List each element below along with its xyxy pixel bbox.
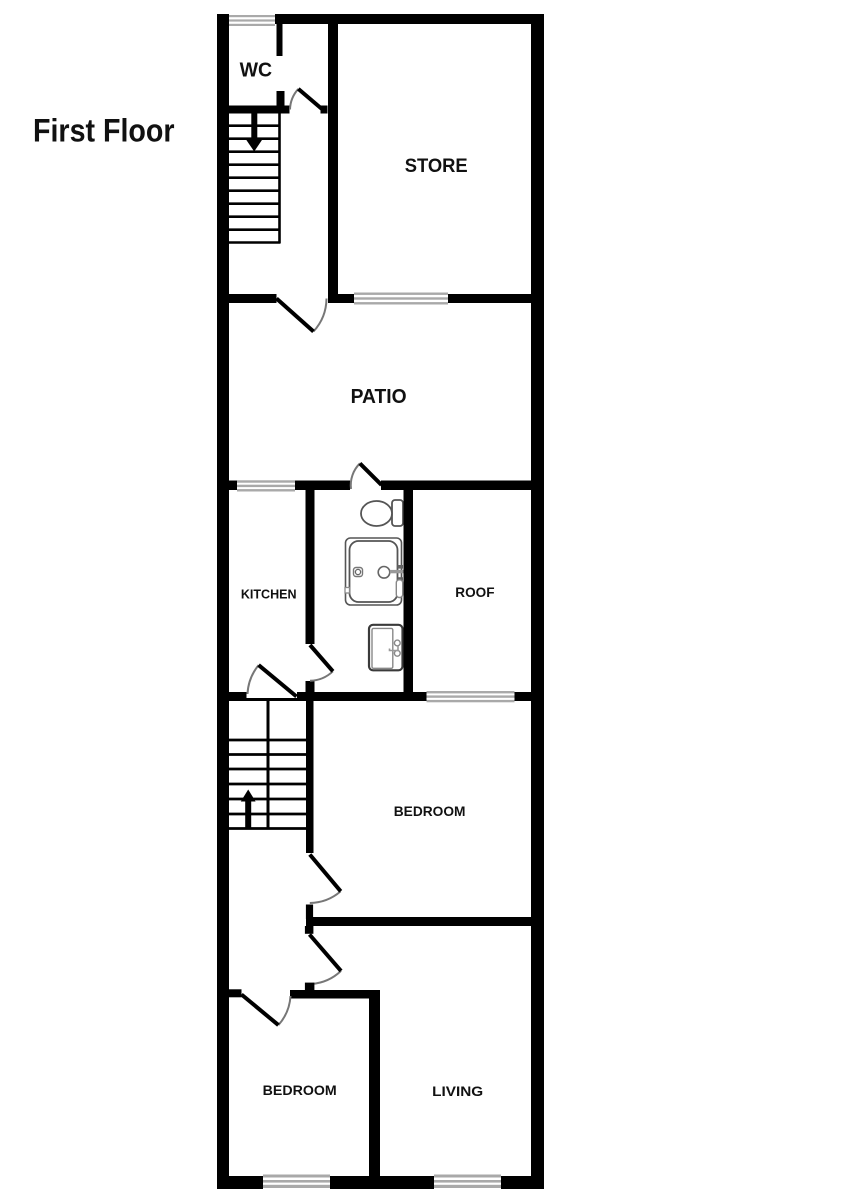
svg-text:BEDROOM: BEDROOM: [394, 803, 466, 819]
svg-text:PATIO: PATIO: [351, 386, 407, 408]
svg-text:WC: WC: [240, 59, 273, 81]
svg-text:ROOF: ROOF: [455, 584, 495, 600]
svg-text:BEDROOM: BEDROOM: [263, 1082, 337, 1098]
svg-text:First Floor: First Floor: [33, 112, 175, 148]
svg-text:KITCHEN: KITCHEN: [241, 587, 297, 601]
svg-text:STORE: STORE: [405, 156, 468, 177]
svg-text:LIVING: LIVING: [432, 1083, 483, 1099]
